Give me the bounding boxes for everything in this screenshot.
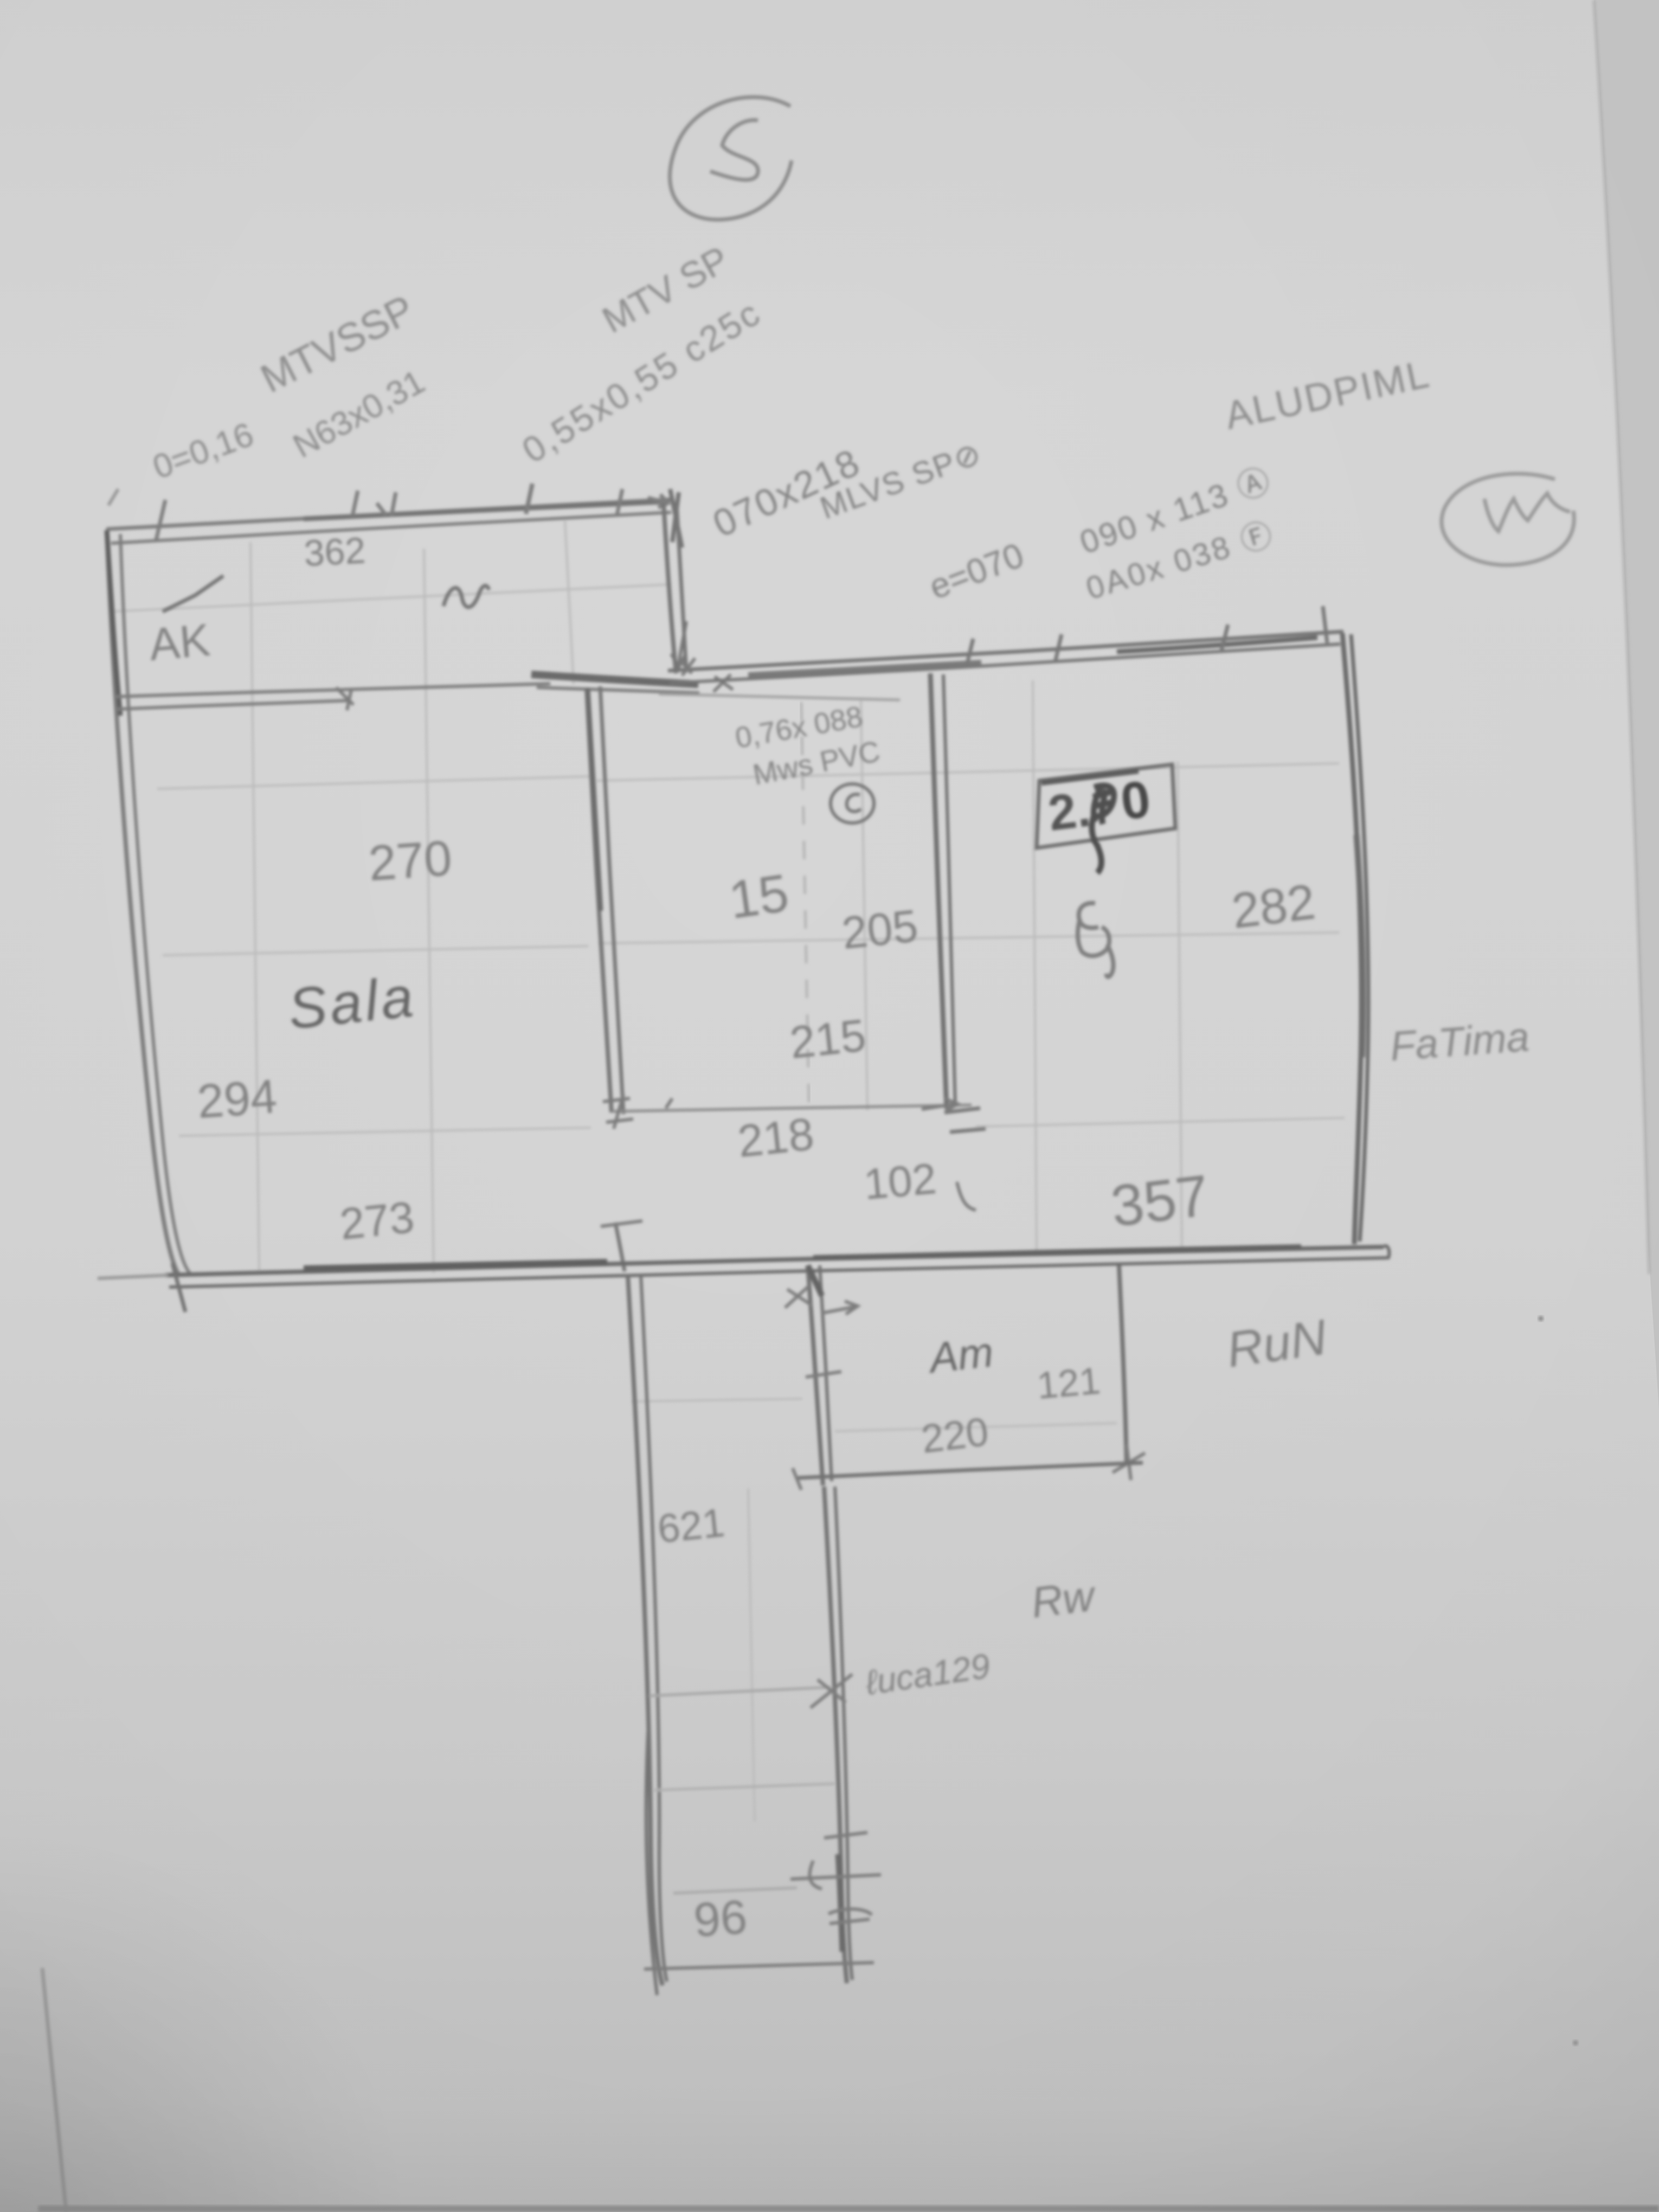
svg-text:121: 121 xyxy=(1036,1359,1102,1407)
svg-text:282: 282 xyxy=(1229,874,1319,939)
svg-text:102: 102 xyxy=(862,1154,938,1208)
svg-text:270: 270 xyxy=(366,831,453,891)
svg-text:AK: AK xyxy=(147,614,212,670)
svg-text:294: 294 xyxy=(196,1069,279,1128)
svg-text:2.: 2. xyxy=(1045,781,1094,841)
svg-text:FaTima: FaTima xyxy=(1388,1014,1531,1070)
svg-text:215: 215 xyxy=(787,1009,868,1068)
svg-text:220: 220 xyxy=(919,1409,991,1461)
svg-text:357: 357 xyxy=(1108,1162,1213,1239)
svg-text:218: 218 xyxy=(735,1108,816,1167)
svg-text:362: 362 xyxy=(303,530,366,574)
svg-text:Sala: Sala xyxy=(285,964,419,1041)
svg-text:96: 96 xyxy=(692,1889,749,1947)
svg-text:15: 15 xyxy=(725,863,792,930)
svg-text:205: 205 xyxy=(839,900,920,959)
svg-text:Am: Am xyxy=(925,1328,996,1382)
svg-text:621: 621 xyxy=(655,1500,726,1551)
svg-text:273: 273 xyxy=(338,1192,417,1249)
svg-text:Rw: Rw xyxy=(1028,1571,1099,1627)
